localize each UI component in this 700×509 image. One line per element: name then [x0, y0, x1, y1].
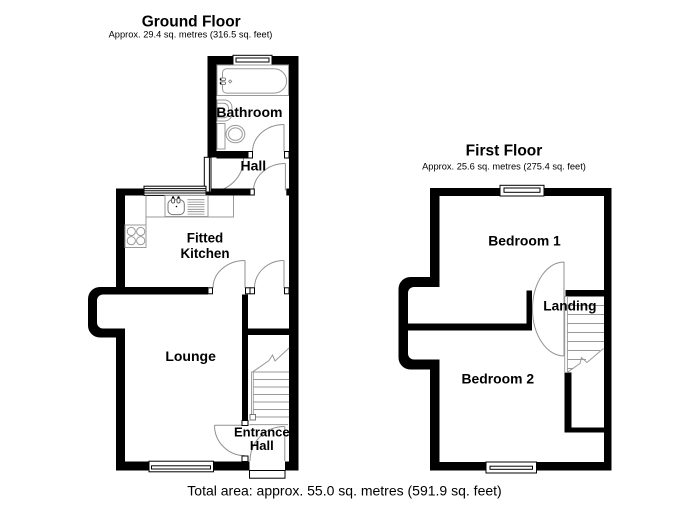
- svg-text:Bathroom: Bathroom: [216, 104, 282, 120]
- svg-text:Bedroom 2: Bedroom 2: [462, 371, 535, 387]
- svg-text:Hall: Hall: [250, 438, 274, 453]
- svg-text:First Floor: First Floor: [466, 143, 543, 160]
- svg-text:Hall: Hall: [240, 157, 266, 173]
- svg-text:Approx. 29.4 sq. metres (316.5: Approx. 29.4 sq. metres (316.5 sq. feet): [109, 29, 273, 39]
- svg-text:Landing: Landing: [543, 298, 596, 313]
- svg-text:Lounge: Lounge: [165, 348, 216, 364]
- svg-text:Total area: approx. 55.0 sq. m: Total area: approx. 55.0 sq. metres (591…: [187, 482, 501, 498]
- svg-text:Bedroom 1: Bedroom 1: [488, 233, 561, 249]
- svg-text:Ground Floor: Ground Floor: [142, 14, 241, 31]
- svg-text:Kitchen: Kitchen: [180, 246, 229, 261]
- svg-text:Fitted: Fitted: [187, 231, 223, 246]
- svg-text:Approx. 25.6 sq. metres (275.4: Approx. 25.6 sq. metres (275.4 sq. feet): [422, 161, 586, 171]
